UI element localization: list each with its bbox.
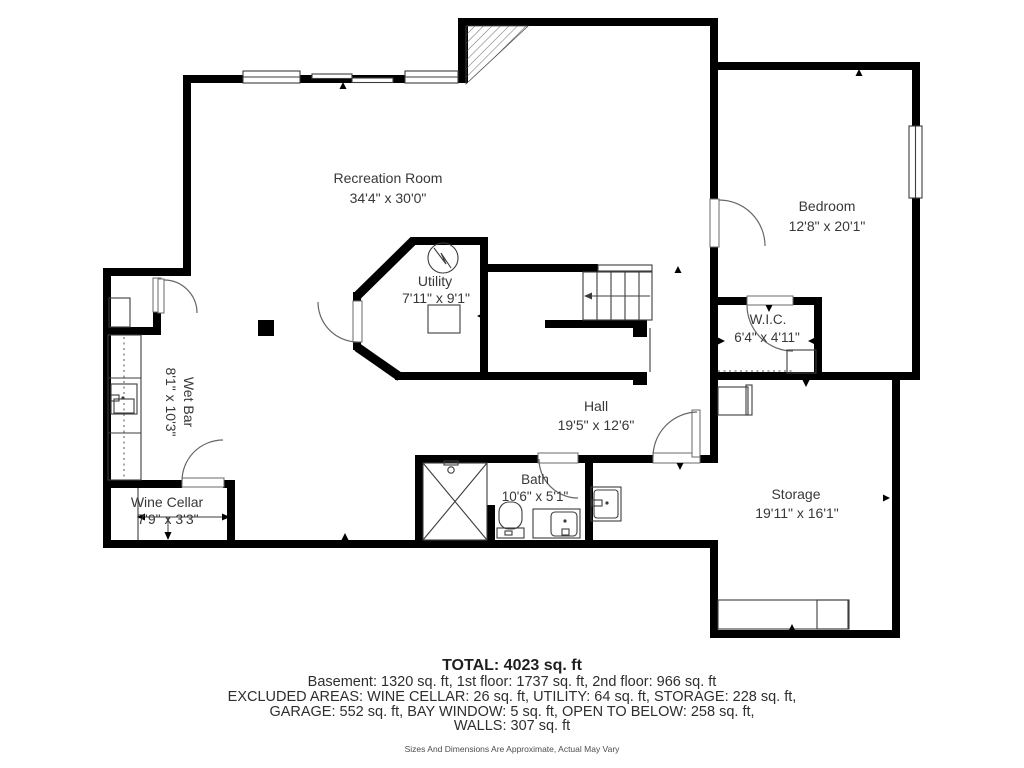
dim-arrow-down (165, 532, 172, 540)
label-storage: Storage (771, 486, 820, 502)
stair-railing (598, 265, 652, 271)
interior-walls (103, 70, 822, 548)
excluded-areas-text-1: EXCLUDED AREAS: WINE CELLAR: 26 sq. ft, … (228, 689, 797, 705)
wic-interior (718, 350, 816, 373)
area-summary: TOTAL: 4023 sq. ft Basement: 1320 sq. ft… (228, 657, 797, 754)
door-closet (153, 278, 197, 313)
label-bedroom-dims: 12'8" x 20'1" (789, 218, 866, 234)
stair-direction-arrow (584, 293, 592, 300)
wet-bar-cabinets (108, 335, 141, 480)
door-wine-cellar (182, 440, 224, 487)
disclaimer-text: Sizes And Dimensions Are Approximate, Ac… (405, 744, 621, 754)
water-heater-coil (434, 248, 451, 268)
door-storage (653, 410, 700, 463)
label-bedroom: Bedroom (799, 198, 856, 214)
door-bedroom (710, 199, 765, 247)
label-utility-dims: 7'11" x 9'1" (402, 290, 470, 306)
staircase (583, 265, 652, 372)
stair-hatch-area (466, 26, 528, 84)
floor-areas-text: Basement: 1320 sq. ft, 1st floor: 1737 s… (308, 674, 717, 690)
label-bath-dims: 10'6" x 5'1" (502, 489, 569, 504)
label-recreation-room: Recreation Room (334, 170, 443, 186)
storage-shelf (718, 387, 748, 415)
floor-plan-svg: Recreation Room 34'4" x 30'0" Utility 7'… (0, 0, 1024, 768)
label-recreation-dims: 34'4" x 30'0" (350, 190, 427, 206)
room-labels: Recreation Room 34'4" x 30'0" Utility 7'… (131, 170, 866, 527)
window-rec-left (243, 71, 300, 83)
walls-area-text: WALLS: 307 sq. ft (454, 718, 570, 734)
label-wet-bar-group: Wet Bar 8'1" x 10'3" (163, 368, 197, 437)
label-bath: Bath (521, 472, 549, 487)
window-bedroom (909, 126, 922, 198)
furnace-icon (428, 305, 460, 333)
label-wet-bar-dims: 8'1" x 10'3" (163, 368, 179, 437)
storage-counter (718, 600, 849, 629)
wic-shelf (787, 350, 816, 373)
total-area-text: TOTAL: 4023 sq. ft (442, 657, 583, 674)
label-wet-bar: Wet Bar (181, 377, 197, 428)
door-utility (318, 301, 362, 342)
shower (423, 461, 487, 540)
window-rec-right (405, 71, 458, 83)
vanity-sink (533, 509, 580, 538)
label-wic: W.I.C. (750, 312, 787, 327)
label-hall: Hall (584, 398, 608, 414)
label-wine-cellar-dims: 7'9" x 3'3" (137, 511, 198, 527)
laundry-sink (591, 487, 621, 521)
label-wine-cellar: Wine Cellar (131, 494, 204, 510)
toilet (497, 502, 524, 538)
label-storage-dims: 19'11" x 16'1" (755, 505, 839, 521)
outer-walls (103, 18, 920, 638)
closet-shelf (109, 298, 130, 327)
label-hall-dims: 19'5" x 12'6" (558, 417, 635, 433)
label-wic-dims: 6'4" x 4'11" (734, 330, 800, 345)
label-utility: Utility (418, 273, 452, 289)
support-column (258, 320, 274, 336)
